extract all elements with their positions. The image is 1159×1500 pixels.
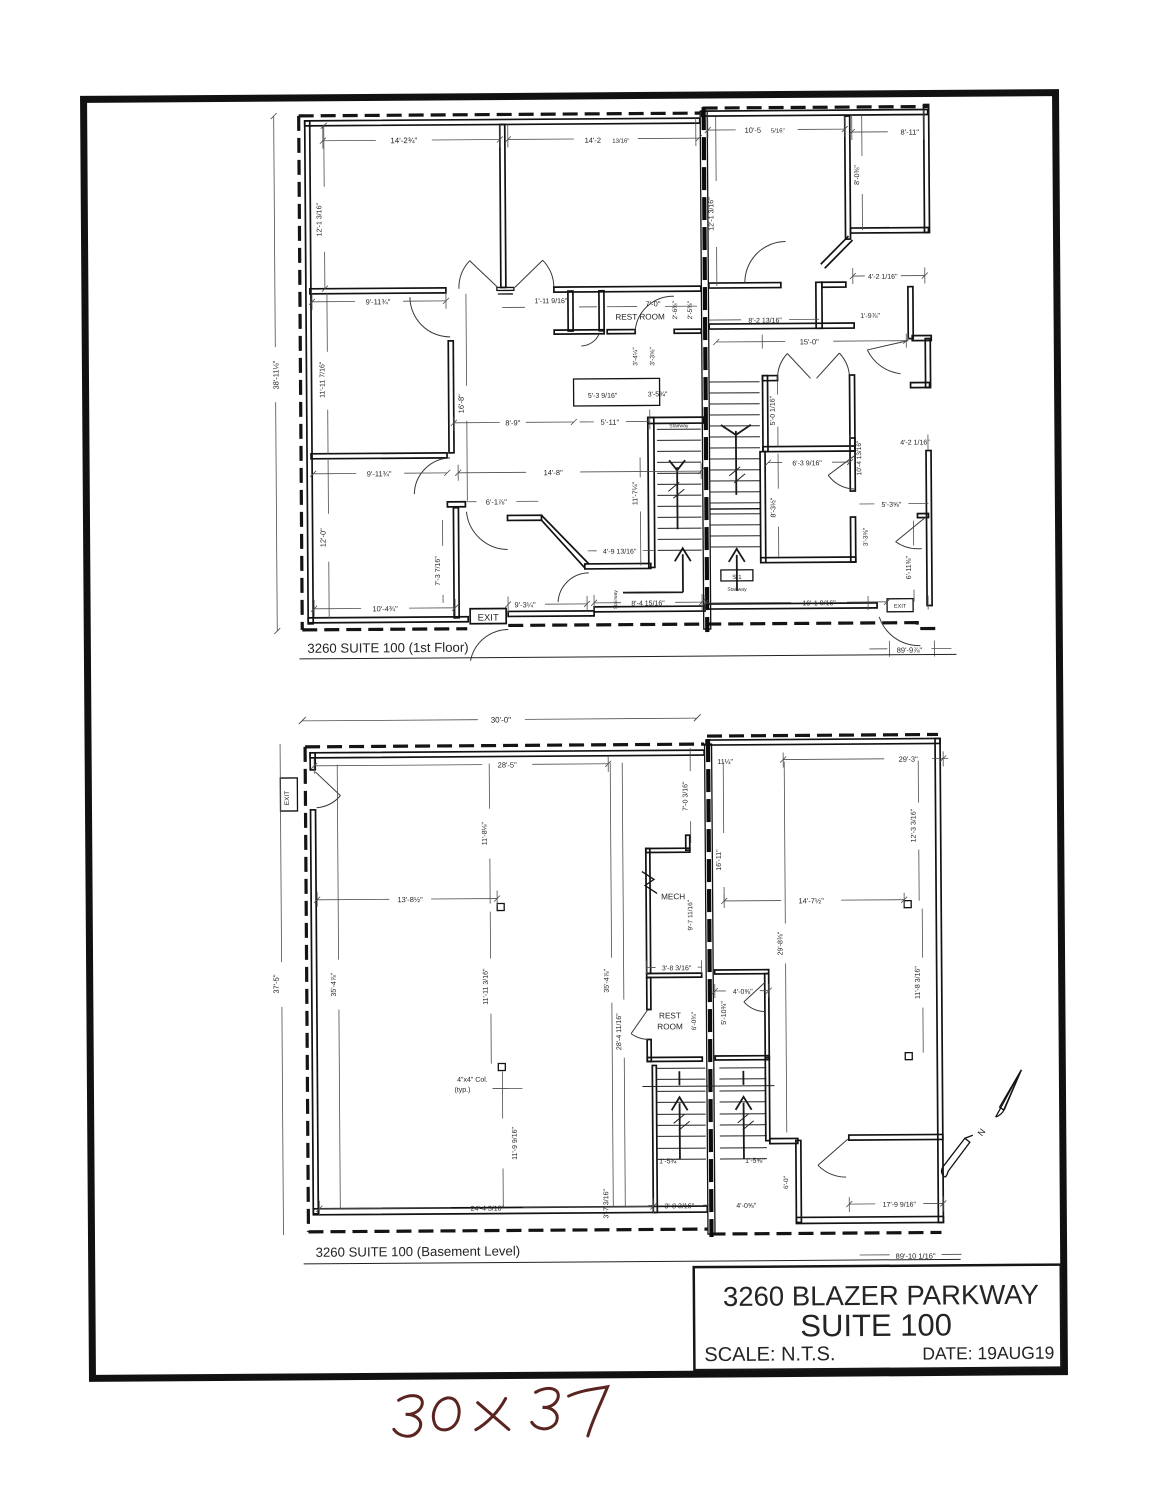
svg-text:8'-9": 8'-9" — [505, 418, 520, 427]
svg-text:DATE: 19AUG19: DATE: 19AUG19 — [922, 1343, 1054, 1364]
svg-text:15'-0": 15'-0" — [800, 337, 820, 346]
svg-text:11¼": 11¼" — [717, 759, 733, 766]
svg-text:11'-8 3/16": 11'-8 3/16" — [915, 966, 922, 999]
svg-text:7'-0": 7'-0" — [645, 299, 660, 308]
svg-text:9'-11¾": 9'-11¾" — [367, 469, 392, 478]
svg-text:12'-1 3/16": 12'-1 3/16" — [316, 203, 323, 237]
svg-text:5'-0 1/16": 5'-0 1/16" — [770, 395, 777, 425]
svg-text:3'-8 3/16": 3'-8 3/16" — [662, 965, 692, 972]
svg-text:4'-9 13/16": 4'-9 13/16" — [603, 549, 637, 556]
svg-text:16'-8": 16'-8" — [457, 394, 466, 414]
svg-text:7'-0 3/16": 7'-0 3/16" — [682, 781, 689, 811]
svg-text:14'-8": 14'-8" — [544, 468, 564, 477]
svg-text:9'-11¾": 9'-11¾" — [366, 297, 391, 306]
svg-text:7'-3 7/16": 7'-3 7/16" — [435, 556, 442, 586]
svg-text:10'-4¾": 10'-4¾" — [372, 604, 398, 613]
svg-text:REST ROOM: REST ROOM — [615, 312, 665, 321]
svg-text:EXIT: EXIT — [284, 791, 291, 806]
svg-text:5'-10¾": 5'-10¾" — [721, 1001, 728, 1025]
svg-text:3'-5¾": 3'-5¾" — [648, 391, 668, 398]
svg-text:(typ.): (typ.) — [454, 1087, 470, 1094]
svg-text:1'-5⅝": 1'-5⅝" — [745, 1158, 765, 1165]
svg-text:11'-11 3/16": 11'-11 3/16" — [483, 968, 490, 1005]
svg-text:N: N — [975, 1127, 987, 1138]
svg-text:8'-2 13/16": 8'-2 13/16" — [748, 318, 782, 325]
svg-text:6'-1⅞": 6'-1⅞" — [486, 497, 508, 506]
svg-text:14'-2¾": 14'-2¾" — [390, 136, 417, 145]
svg-text:4'-0⅝": 4'-0⅝" — [736, 1203, 756, 1210]
svg-text:MECH: MECH — [661, 892, 685, 901]
svg-text:29'-8⅜": 29'-8⅜" — [777, 931, 784, 955]
svg-text:3260 SUITE 100 (1st Floor): 3260 SUITE 100 (1st Floor) — [307, 640, 468, 656]
svg-text:35'-4⅞": 35'-4⅞" — [604, 968, 611, 992]
svg-text:89'-9⅞": 89'-9⅞" — [897, 646, 923, 655]
svg-text:5'-11": 5'-11" — [601, 418, 620, 427]
svg-text:8'-4 15/16": 8'-4 15/16" — [631, 600, 665, 607]
svg-text:10'-5: 10'-5 — [745, 126, 762, 135]
svg-text:SCALE: N.T.S.: SCALE: N.T.S. — [704, 1343, 835, 1366]
svg-text:3'-3⅜": 3'-3⅜" — [863, 527, 870, 546]
svg-text:5'-3 9/16": 5'-3 9/16" — [588, 393, 618, 400]
svg-text:11'-8⅛": 11'-8⅛" — [482, 822, 489, 846]
svg-text:1'-5¾": 1'-5¾" — [659, 1158, 679, 1165]
svg-text:Stairway: Stairway — [727, 587, 747, 593]
svg-text:14'-2: 14'-2 — [585, 136, 602, 145]
svg-text:3'-3⅝": 3'-3⅝" — [649, 347, 656, 366]
svg-text:11'-11 7/16": 11'-11 7/16" — [319, 361, 326, 398]
svg-text:13/16": 13/16" — [612, 139, 629, 145]
svg-text:3'-7 3/16": 3'-7 3/16" — [603, 1188, 610, 1218]
svg-text:9'-7 11/16": 9'-7 11/16" — [687, 899, 694, 930]
svg-text:Stairway: Stairway — [613, 590, 619, 610]
svg-text:8'-3½": 8'-3½" — [769, 497, 777, 517]
svg-text:REST: REST — [659, 1011, 681, 1020]
svg-text:28'-4 11/16": 28'-4 11/16" — [616, 1013, 623, 1050]
svg-text:4'-2 1/16": 4'-2 1/16" — [900, 440, 930, 447]
svg-text:5/16": 5/16" — [771, 129, 785, 135]
svg-text:3'-4¼": 3'-4¼" — [632, 347, 639, 366]
svg-text:8'-0⅜": 8'-0⅜" — [854, 165, 861, 185]
svg-text:4"x4" Col.: 4"x4" Col. — [457, 1077, 488, 1084]
svg-text:4'-2 1/16": 4'-2 1/16" — [868, 274, 898, 281]
svg-text:6'-0¾": 6'-0¾" — [691, 1011, 698, 1030]
svg-text:38'-11⅛": 38'-11⅛" — [271, 360, 280, 389]
svg-text:12'-0": 12'-0" — [319, 528, 328, 548]
svg-text:17'-9 9/16": 17'-9 9/16" — [883, 1202, 917, 1209]
svg-text:6'-0": 6'-0" — [783, 1175, 790, 1189]
svg-text:2'-6⅜": 2'-6⅜" — [672, 300, 679, 319]
svg-text:5'-3⅝": 5'-3⅝" — [881, 502, 901, 509]
svg-text:13'-8½": 13'-8½" — [397, 895, 423, 904]
svg-text:37'-5": 37'-5" — [272, 974, 281, 994]
svg-text:16'-1 9/16": 16'-1 9/16" — [802, 600, 836, 607]
svg-text:12'-3 3/16": 12'-3 3/16" — [911, 808, 918, 842]
svg-text:11'-7¼": 11'-7¼" — [632, 481, 639, 505]
svg-text:6'-3 9/16": 6'-3 9/16" — [792, 460, 822, 467]
svg-text:1'-9⅞": 1'-9⅞" — [860, 313, 880, 320]
svg-text:35'-4⅞": 35'-4⅞" — [331, 972, 338, 996]
svg-text:1'-11 9/16": 1'-11 9/16" — [535, 298, 568, 305]
svg-text:28'-5": 28'-5" — [498, 760, 518, 769]
svg-text:ROOM: ROOM — [657, 1022, 683, 1031]
svg-text:EXIT: EXIT — [478, 613, 499, 624]
svg-text:10'-4 13/16": 10'-4 13/16" — [856, 440, 863, 475]
svg-text:9'-3¼": 9'-3¼" — [514, 600, 536, 609]
svg-text:S-1: S-1 — [732, 575, 742, 581]
svg-text:11'-9 9/16": 11'-9 9/16" — [512, 1126, 519, 1159]
svg-text:6'-11⅜": 6'-11⅜" — [906, 556, 913, 580]
svg-text:16'-11": 16'-11" — [716, 849, 723, 871]
svg-text:EXIT: EXIT — [894, 604, 907, 610]
svg-text:24'-4 3/16": 24'-4 3/16" — [471, 1205, 505, 1212]
svg-text:12'-1 3/16": 12'-1 3/16" — [708, 197, 715, 231]
svg-text:Stairway: Stairway — [669, 423, 689, 429]
svg-text:29'-3": 29'-3" — [899, 755, 919, 764]
svg-text:8'-11": 8'-11" — [900, 128, 919, 137]
svg-text:SUITE 100: SUITE 100 — [800, 1307, 952, 1343]
svg-text:3260 SUITE 100 (Basement Level: 3260 SUITE 100 (Basement Level) — [316, 1243, 521, 1259]
svg-text:14'-7½": 14'-7½" — [798, 896, 824, 905]
svg-text:3'-8 3/16": 3'-8 3/16" — [665, 1203, 695, 1210]
svg-text:30'-0": 30'-0" — [491, 715, 512, 724]
svg-text:4'-0⅝": 4'-0⅝" — [733, 989, 753, 996]
svg-text:2'-5⅜": 2'-5⅜" — [687, 300, 694, 319]
